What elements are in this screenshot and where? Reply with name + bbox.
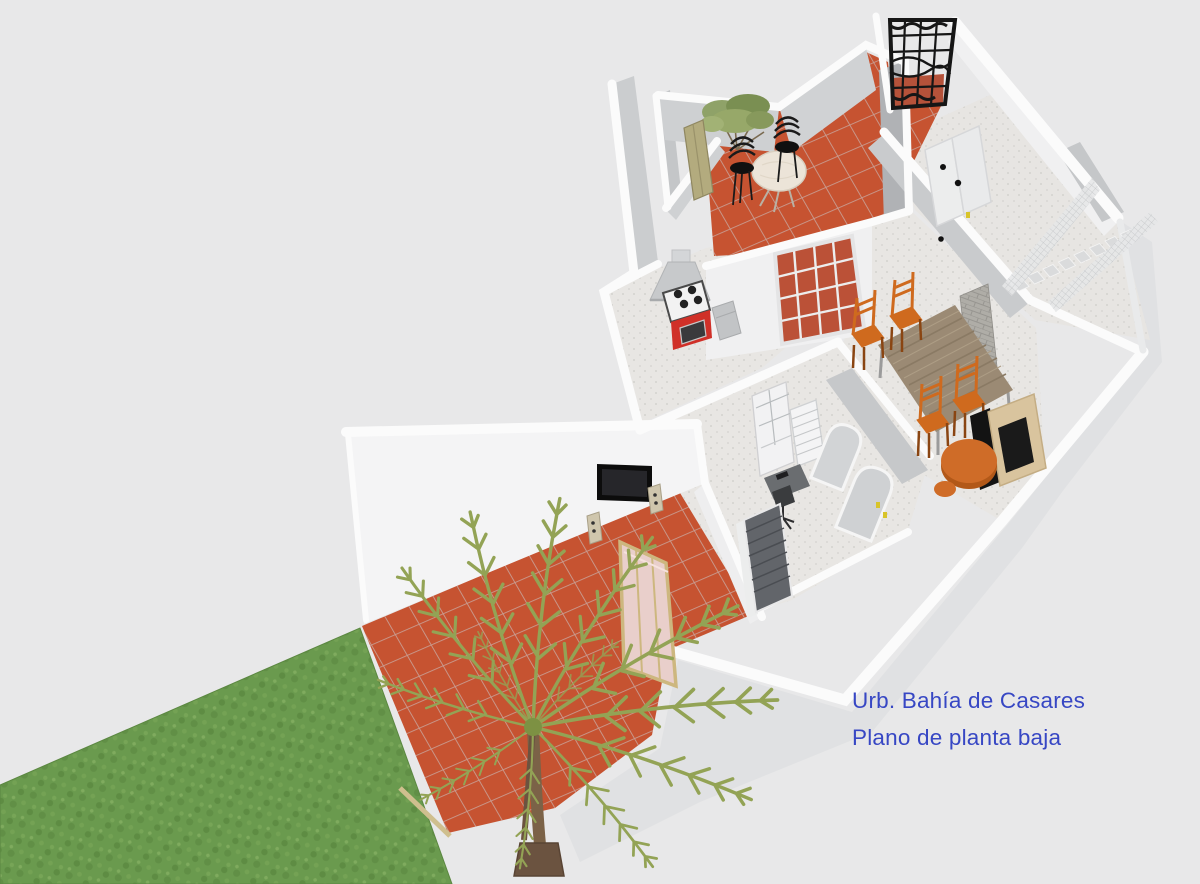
door-knob bbox=[940, 164, 946, 170]
door-handle-yellow bbox=[966, 212, 970, 218]
door-knob bbox=[955, 180, 961, 186]
bookcase-hutch bbox=[752, 382, 794, 476]
stool bbox=[934, 481, 956, 497]
floor-plan-render: Urb. Bahía de Casares Plano de planta ba… bbox=[0, 0, 1200, 884]
plan-caption: Urb. Bahía de Casares Plano de planta ba… bbox=[852, 682, 1085, 756]
caption-line-1: Urb. Bahía de Casares bbox=[852, 682, 1085, 719]
door-handle-yellow bbox=[876, 502, 880, 508]
door-handle-yellow bbox=[883, 512, 887, 518]
caption-line-2: Plano de planta baja bbox=[852, 719, 1085, 756]
tv-screen bbox=[597, 464, 652, 502]
door-knob bbox=[938, 236, 944, 242]
